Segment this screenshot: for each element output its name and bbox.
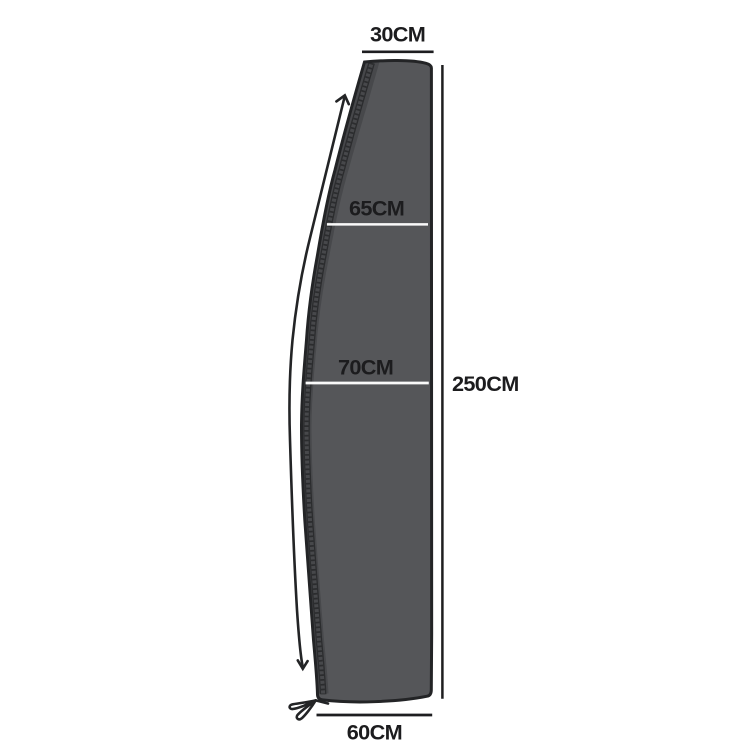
svg-text:30CM: 30CM: [370, 22, 425, 47]
svg-text:250CM: 250CM: [452, 371, 519, 396]
svg-text:65CM: 65CM: [349, 196, 404, 221]
svg-text:70CM: 70CM: [338, 355, 393, 380]
svg-text:60CM: 60CM: [347, 719, 402, 744]
